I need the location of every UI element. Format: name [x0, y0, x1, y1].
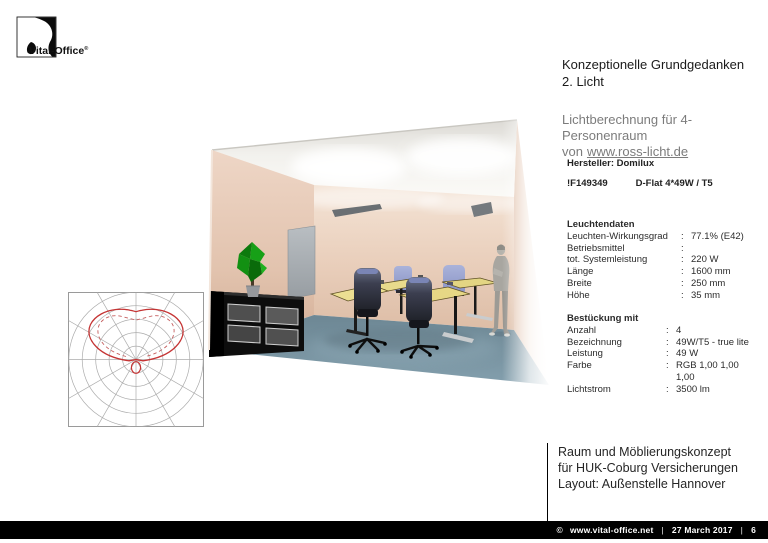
equipment-data-block: Bestückung mit Anzahl : 4 Bezeichnung : …	[567, 313, 763, 395]
data-row-label: Bezeichnung	[567, 337, 666, 349]
data-row-value: 250 mm	[691, 278, 725, 290]
project-note-line2: für HUK-Coburg Versicherungen	[558, 460, 738, 476]
slide-title-line2: 2. Licht	[562, 73, 744, 90]
footer-separator: |	[661, 525, 663, 535]
data-row-value: RGB 1,00 1,00 1,00	[676, 360, 739, 383]
data-row-label: Höhe	[567, 290, 681, 302]
data-row-value: 1600 mm	[691, 266, 731, 278]
data-row: Breite : 250 mm	[567, 278, 763, 290]
subtitle-line1: Lichtberechnung für 4-Personenraum	[562, 112, 768, 144]
data-row-label: Lichtstrom	[567, 384, 666, 396]
data-row-colon: :	[666, 337, 672, 349]
footer-page-number: 6	[751, 525, 756, 535]
product-name: D-Flat 4*49W / T5	[636, 178, 713, 189]
equipment-data-heading: Bestückung mit	[567, 313, 763, 324]
data-row-colon: :	[681, 231, 687, 243]
project-note-line1: Raum und Möblierungskonzept	[558, 444, 738, 460]
data-row-colon: :	[681, 254, 687, 266]
data-row-colon: :	[681, 266, 687, 278]
copyright-symbol: ©	[557, 525, 563, 535]
data-row-colon: :	[666, 348, 672, 360]
logo-text: Vital-Office®	[29, 45, 88, 57]
data-row-value: 49W/T5 - true lite	[676, 337, 749, 349]
equipment-data-rows: Anzahl : 4 Bezeichnung : 49W/T5 - true l…	[567, 325, 763, 395]
product-code: !F149349	[567, 178, 633, 189]
data-row: Lichtstrom : 3500 lm	[567, 384, 763, 396]
luminaire-data-block: Leuchtendaten Leuchten-Wirkungsgrad : 77…	[567, 219, 763, 301]
luminaire-data-heading: Leuchtendaten	[567, 219, 763, 230]
footer-separator: |	[741, 525, 743, 535]
data-row-value: 4	[676, 325, 681, 337]
data-row-label: Breite	[567, 278, 681, 290]
data-row: tot. Systemleistung : 220 W	[567, 254, 763, 266]
data-row-colon: :	[681, 290, 687, 302]
data-row-value: 77.1% (E42)	[691, 231, 744, 243]
data-row-colon: :	[666, 360, 672, 383]
note-divider-rule	[547, 443, 548, 521]
data-row: Leistung : 49 W	[567, 348, 763, 360]
subtitle-prefix: von	[562, 144, 583, 159]
footer-date: 27 March 2017	[672, 525, 733, 535]
door	[288, 226, 315, 299]
data-row-value: 220 W	[691, 254, 718, 266]
window-light-fade	[502, 110, 552, 395]
data-row-value: 49 W	[676, 348, 698, 360]
sideboard	[209, 291, 304, 357]
data-row: Bezeichnung : 49W/T5 - true lite	[567, 337, 763, 349]
data-row: Länge : 1600 mm	[567, 266, 763, 278]
data-row-value: 3500 lm	[676, 384, 710, 396]
data-row: Betriebsmittel :	[567, 243, 763, 255]
footer-website: www.vital-office.net	[570, 525, 654, 535]
data-row-label: Leuchten-Wirkungsgrad	[567, 231, 681, 243]
data-row-label: Anzahl	[567, 325, 666, 337]
footer-bar: © www.vital-office.net | 27 March 2017 |…	[0, 521, 768, 539]
product-line: !F149349 D-Flat 4*49W / T5	[567, 178, 713, 189]
project-note: Raum und Möblierungskonzept für HUK-Cobu…	[558, 444, 738, 492]
project-note-line3: Layout: Außenstelle Hannover	[558, 476, 738, 492]
data-row-value: 35 mm	[691, 290, 720, 302]
data-row: Leuchten-Wirkungsgrad : 77.1% (E42)	[567, 231, 763, 243]
data-row: Farbe : RGB 1,00 1,00 1,00	[567, 360, 763, 383]
data-row-colon: :	[666, 384, 672, 396]
data-row-label: Farbe	[567, 360, 666, 383]
data-row-label: Leistung	[567, 348, 666, 360]
data-row: Anzahl : 4	[567, 325, 763, 337]
data-row-colon: :	[681, 278, 687, 290]
vital-office-logo: Vital-Office®	[16, 15, 111, 61]
data-row: Höhe : 35 mm	[567, 290, 763, 302]
luminaire-data-rows: Leuchten-Wirkungsgrad : 77.1% (E42) Betr…	[567, 231, 763, 301]
data-row-label: tot. Systemleistung	[567, 254, 681, 266]
data-row-colon: :	[681, 243, 687, 255]
slide-title: Konzeptionelle Grundgedanken 2. Licht	[562, 56, 744, 90]
ross-licht-link[interactable]: www.ross-licht.de	[587, 144, 688, 159]
light-distribution-diagram	[68, 292, 204, 427]
manufacturer-line: Hersteller: Domilux	[567, 158, 654, 169]
slide-page: Vital-Office®	[0, 0, 768, 543]
data-row-label: Länge	[567, 266, 681, 278]
room-render	[204, 110, 552, 395]
slide-subtitle: Lichtberechnung für 4-Personenraum vonww…	[562, 112, 768, 160]
slide-title-line1: Konzeptionelle Grundgedanken	[562, 56, 744, 73]
data-row-colon: :	[666, 325, 672, 337]
data-row-label: Betriebsmittel	[567, 243, 681, 255]
